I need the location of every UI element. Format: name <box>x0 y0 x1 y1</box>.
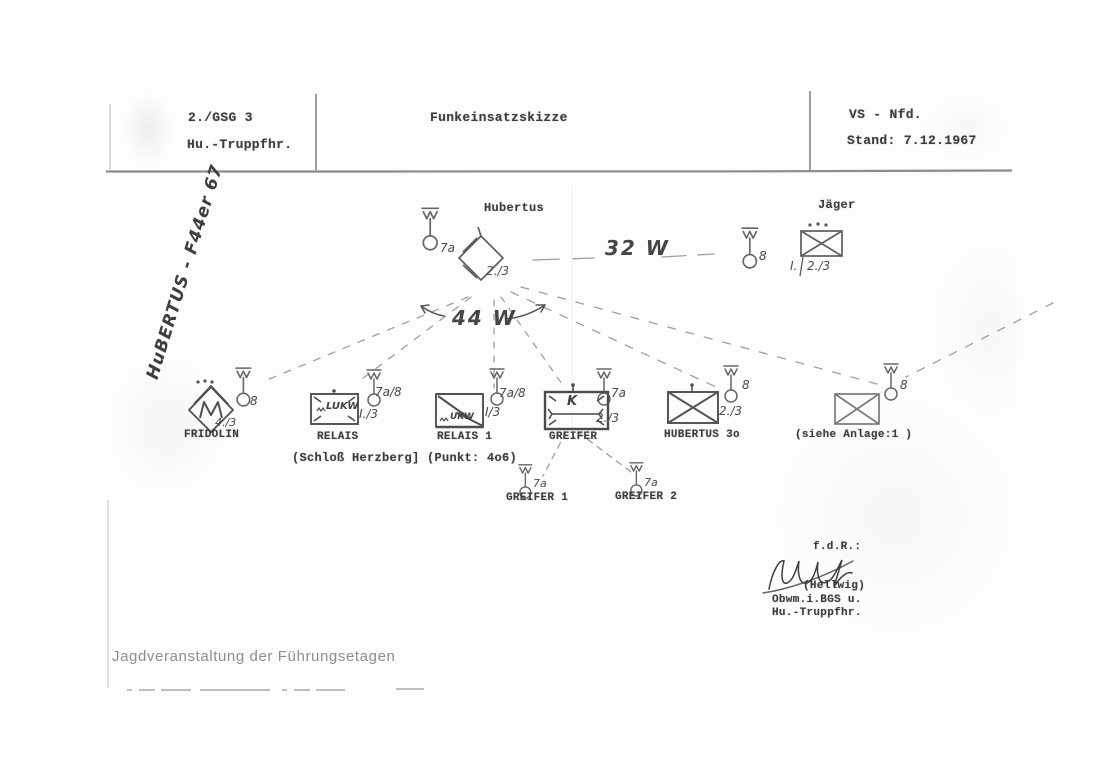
station-hubertus-name: Hubertus <box>484 201 544 215</box>
station-fridolin-name: FRIDOLIN <box>184 429 239 441</box>
station-greifer1-name: GREIFER 1 <box>506 492 568 504</box>
station-greifer2-name: GREIFER 2 <box>615 491 677 503</box>
bottom-scan-marks <box>127 689 424 690</box>
dashed-links <box>262 254 1053 476</box>
link-32w-left <box>533 258 594 260</box>
antenna-label-greifer1: 7a <box>533 477 547 490</box>
antenna-label-greifer2: 7a <box>644 476 658 489</box>
antenna-label-fridolin: 8 <box>250 394 258 408</box>
radio-wave-icon <box>440 418 448 421</box>
classification-label: VS - Nfd. <box>849 107 922 122</box>
antenna-icon-anlage <box>884 364 898 400</box>
location-note: (Schloß Herzberg] (Punkt: 4o6) <box>292 451 517 465</box>
link-edge-anlage <box>906 303 1053 377</box>
unit-label-hubertus: 2./3 <box>486 264 509 278</box>
unit-label-relais1: I/3 <box>485 405 500 419</box>
unit-symbol-anlage <box>835 394 879 424</box>
header-rules <box>106 91 1012 688</box>
antenna-icon-hubertus30 <box>724 366 738 402</box>
antenna-icon-hubertus <box>422 208 438 249</box>
unit-label-jaeger: 2./3 <box>807 259 830 273</box>
doc-title: Funkeinsatzskizze <box>430 110 568 125</box>
radio-wave-icon <box>317 408 325 411</box>
header-role: Hu.-Truppfhr. <box>187 137 292 152</box>
antenna-label-jaeger: 8 <box>759 249 767 263</box>
date-stamp: Stand: 7.12.1967 <box>847 133 977 148</box>
image-caption: Jagdveranstaltung der Führungsetagen <box>112 648 395 665</box>
station-hubertus30-name: HUBERTUS 3o <box>664 429 740 441</box>
signature-name: (Hellwig) <box>803 580 865 592</box>
antenna-label-hubertus30: 8 <box>742 378 750 392</box>
antenna-icon-fridolin <box>236 368 251 406</box>
unit-label-relais: I./3 <box>359 407 378 421</box>
unit-symbol-relais1 <box>436 394 483 427</box>
antenna-label-greifer: 7a <box>611 386 626 400</box>
antenna-label-hubertus: 7a <box>440 241 455 255</box>
signature-rank-line2: Hu.-Truppfhr. <box>772 607 862 619</box>
link-hubertus-anlage <box>521 287 877 384</box>
box-text-relais: LUKW <box>326 401 358 412</box>
unit-label-greifer: 2./3 <box>596 411 619 425</box>
station-relais1-name: RELAIS 1 <box>437 431 492 443</box>
antenna-icon-jaeger <box>742 228 757 268</box>
station-anlage-name: (siehe Anlage:1 ) <box>795 429 912 441</box>
power-label-44w: 44 W <box>452 306 517 330</box>
box-text-relais1: UKW <box>450 412 474 422</box>
antenna-label-relais1: 7a/8 <box>499 386 526 400</box>
power-label-32w: 32 W <box>605 236 670 260</box>
scanned-document-page: 2./GSG 3 Hu.-Truppfhr. Funkeinsatzskizze… <box>0 0 1100 778</box>
antenna-label-anlage: 8 <box>900 378 908 392</box>
signature-rank-line1: Obwm.i.BGS u. <box>772 594 862 606</box>
station-greifer-name: GREIFER <box>549 431 597 443</box>
unit-prefix-jaeger: I. <box>790 259 797 273</box>
unit-label-hubertus30: 2./3 <box>719 404 742 418</box>
header-unit: 2./GSG 3 <box>188 110 253 125</box>
signature-fdr: f.d.R.: <box>813 541 861 553</box>
antenna-label-relais: 7a/8 <box>375 385 402 399</box>
station-relais-name: RELAIS <box>317 431 358 443</box>
station-jaeger-name: Jäger <box>818 198 856 212</box>
box-text-greifer: K <box>567 394 577 409</box>
link-hubertus-fridolin <box>262 297 468 382</box>
unit-symbol-hubertus30 <box>668 383 718 423</box>
unit-label-fridolin: 4./3 <box>215 416 236 429</box>
